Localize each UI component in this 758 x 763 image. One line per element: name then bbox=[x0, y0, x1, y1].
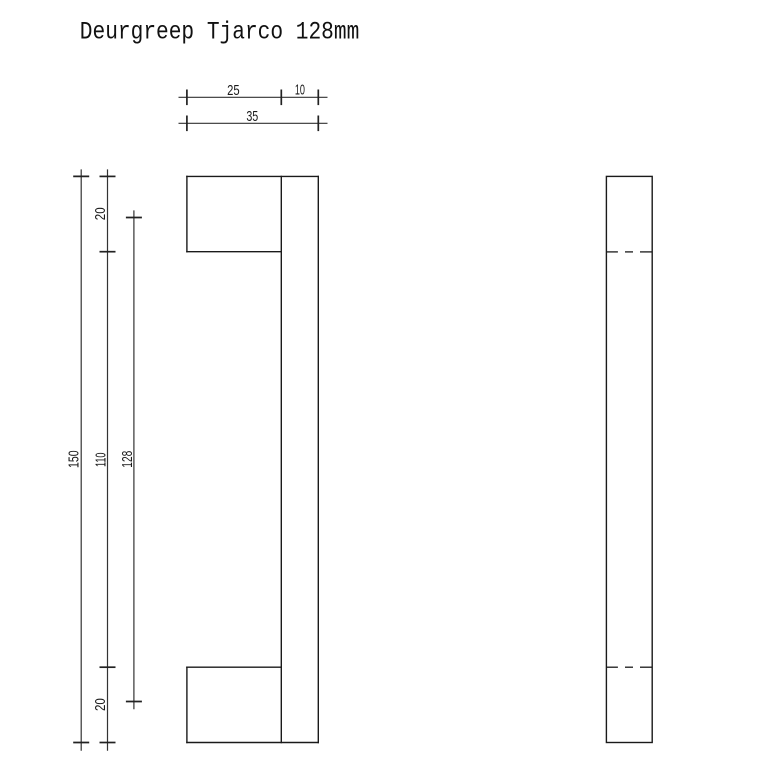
svg-text:110: 110 bbox=[92, 453, 109, 468]
svg-text:25: 25 bbox=[227, 82, 240, 99]
svg-text:20: 20 bbox=[92, 207, 109, 220]
svg-text:128: 128 bbox=[119, 451, 136, 468]
svg-text:150: 150 bbox=[66, 450, 83, 468]
svg-text:20: 20 bbox=[92, 698, 109, 711]
svg-text:10: 10 bbox=[295, 82, 305, 99]
svg-text:Deurgreep Tjarco 128mm: Deurgreep Tjarco 128mm bbox=[80, 17, 360, 46]
svg-text:35: 35 bbox=[246, 108, 258, 125]
